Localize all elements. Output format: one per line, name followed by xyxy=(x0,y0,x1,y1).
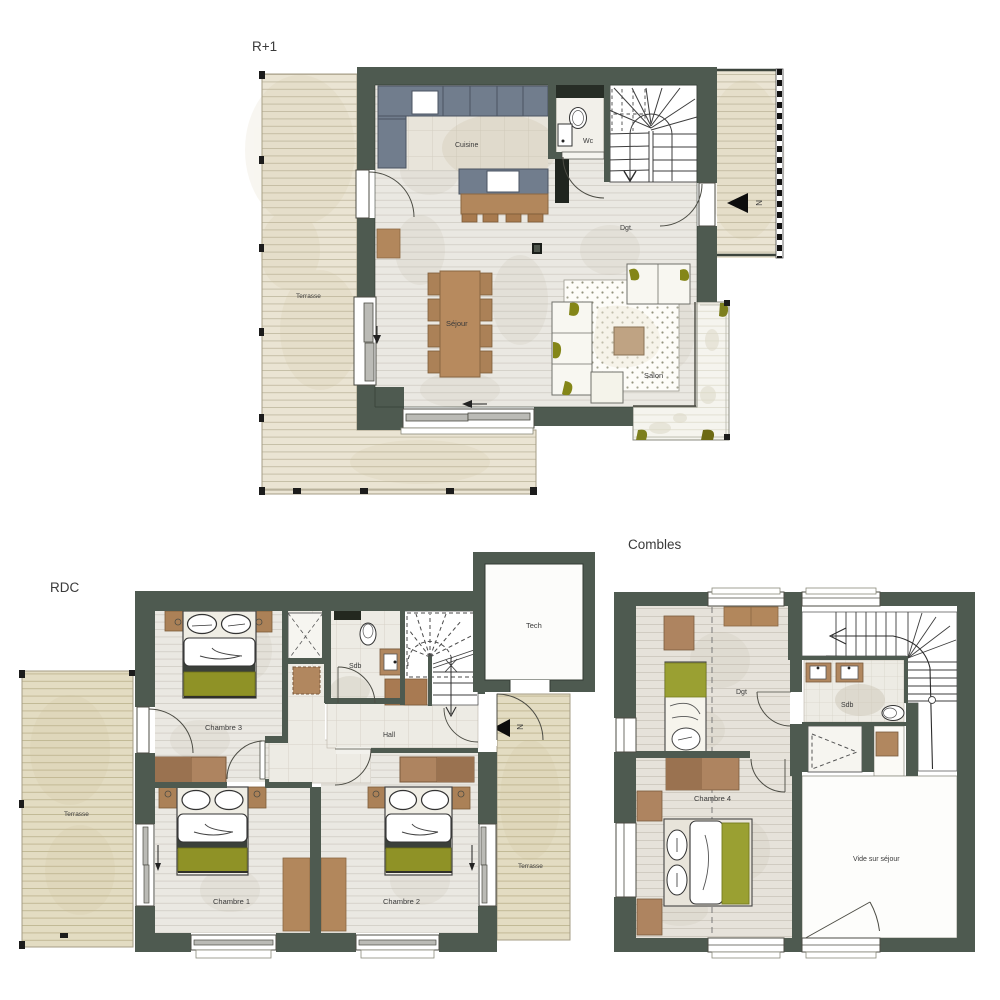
svg-text:Dgt: Dgt xyxy=(736,689,747,696)
svg-text:N: N xyxy=(515,724,524,730)
svg-text:Cuisine: Cuisine xyxy=(455,142,478,149)
svg-text:Hall: Hall xyxy=(383,732,396,739)
svg-text:Terrasse: Terrasse xyxy=(296,293,321,300)
svg-text:Vide sur séjour: Vide sur séjour xyxy=(853,856,900,863)
svg-text:Salon: Salon xyxy=(644,371,663,380)
svg-text:Chambre 3: Chambre 3 xyxy=(205,723,242,732)
svg-text:N: N xyxy=(754,200,763,206)
svg-text:Wc: Wc xyxy=(583,138,594,145)
svg-text:Tech: Tech xyxy=(526,621,542,630)
svg-text:RDC: RDC xyxy=(50,580,79,595)
svg-text:Chambre 2: Chambre 2 xyxy=(383,897,420,906)
svg-text:Combles: Combles xyxy=(628,537,682,552)
svg-text:Terrasse: Terrasse xyxy=(518,863,543,870)
svg-text:Sdb: Sdb xyxy=(841,702,854,709)
svg-text:Séjour: Séjour xyxy=(446,319,468,328)
svg-text:Dgt.: Dgt. xyxy=(620,225,633,232)
svg-text:R+1: R+1 xyxy=(252,39,277,54)
svg-text:Chambre 1: Chambre 1 xyxy=(213,897,250,906)
svg-text:Chambre 4: Chambre 4 xyxy=(694,794,731,803)
svg-text:Terrasse: Terrasse xyxy=(64,811,89,818)
